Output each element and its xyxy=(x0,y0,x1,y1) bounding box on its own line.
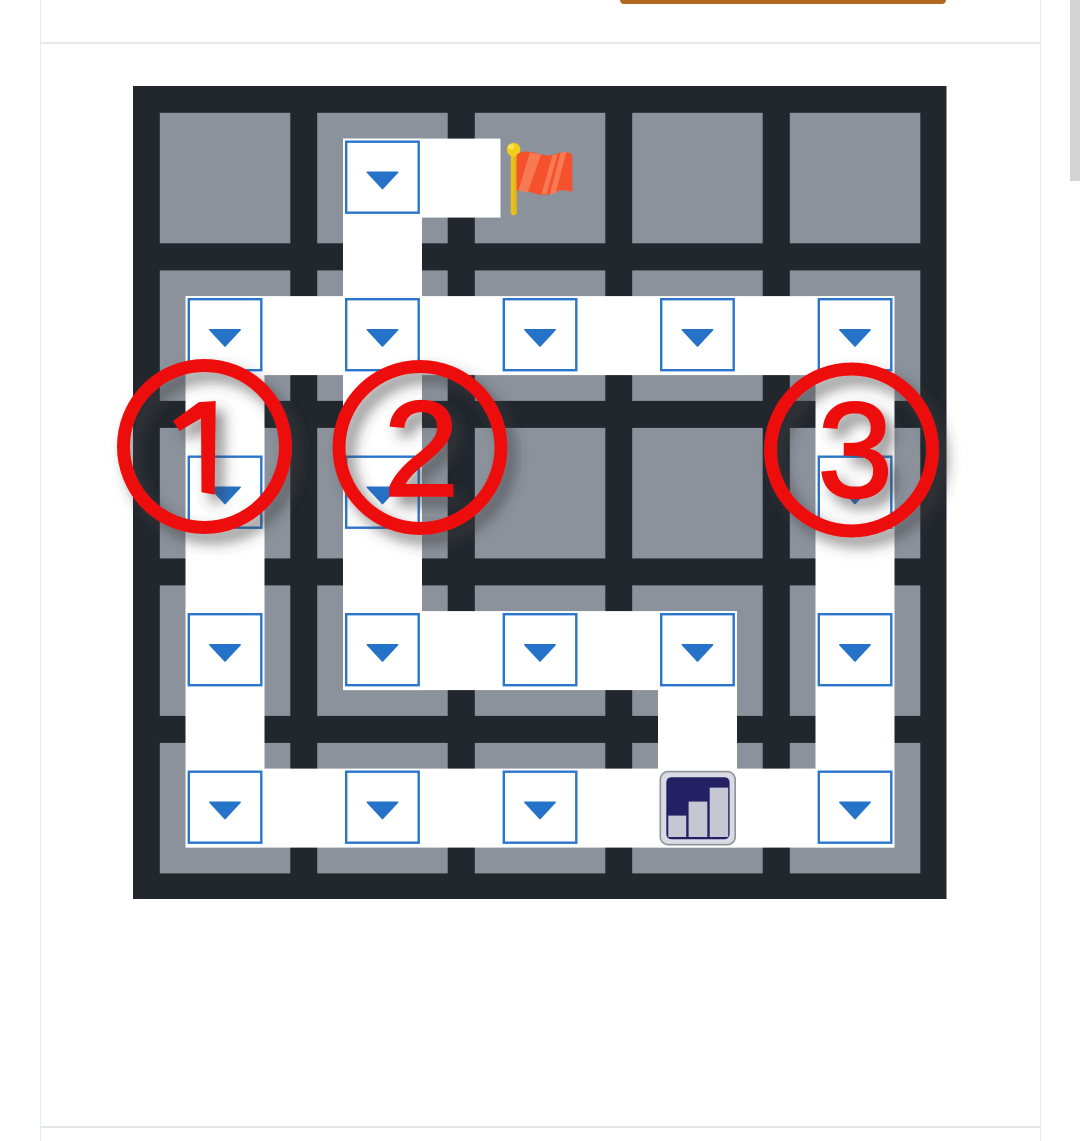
svg-text:3: 3 xyxy=(818,375,893,526)
svg-text:2: 2 xyxy=(384,373,459,524)
